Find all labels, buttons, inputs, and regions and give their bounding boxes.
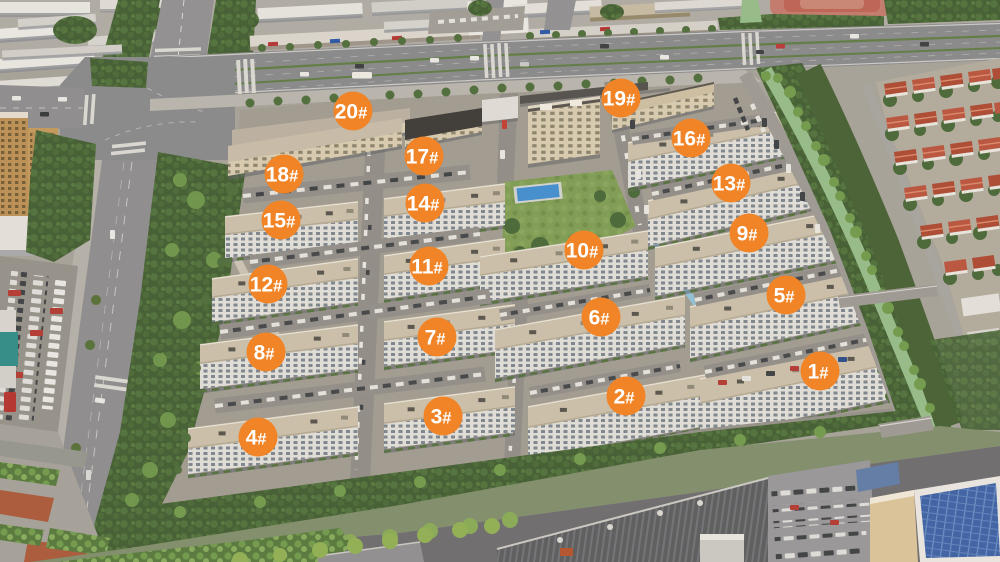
svg-text:16#: 16# [673,128,706,151]
svg-text:8#: 8# [254,342,275,365]
svg-text:4#: 4# [246,427,267,450]
svg-text:10#: 10# [566,240,599,263]
svg-text:18#: 18# [266,164,299,187]
svg-text:1#: 1# [808,361,829,384]
svg-text:7#: 7# [425,327,446,350]
svg-text:17#: 17# [406,146,439,169]
svg-text:12#: 12# [250,274,283,297]
svg-text:20#: 20# [335,101,368,124]
svg-text:15#: 15# [263,210,296,233]
svg-text:13#: 13# [713,173,746,196]
svg-text:6#: 6# [589,307,610,330]
svg-text:11#: 11# [411,256,442,279]
svg-text:14#: 14# [407,193,440,216]
svg-text:19#: 19# [603,88,636,111]
svg-text:5#: 5# [774,285,795,308]
svg-text:9#: 9# [737,223,758,246]
svg-text:2#: 2# [614,386,635,409]
svg-text:3#: 3# [431,406,452,429]
